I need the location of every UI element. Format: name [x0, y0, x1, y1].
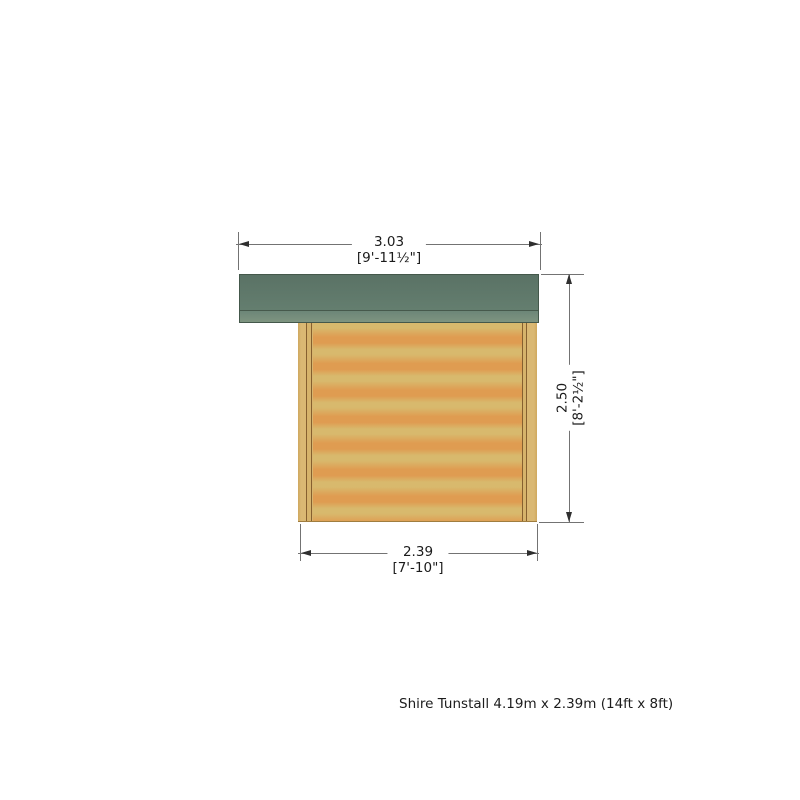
top-dim-ext-right-line — [540, 232, 541, 270]
bottom-dim-ext-right-line — [537, 524, 538, 561]
top-dim-ext-left-line — [238, 232, 239, 270]
top-dim-label: 3.03 [9'-11½"] — [352, 235, 426, 266]
right-dim-ext-bottom-line — [539, 522, 584, 523]
roof — [239, 274, 539, 323]
bottom-dim-label: 2.39 [7'-10"] — [387, 545, 448, 576]
right-dim-label: 2.50 [8'-2½"] — [555, 365, 586, 431]
bottom-dim-arrow-left — [301, 550, 311, 556]
right-dim-arrow-down — [566, 512, 572, 522]
wall-left-corner-post — [298, 323, 313, 521]
top-dim-imperial-value: [9'-11½"] — [357, 251, 421, 267]
roof-panel — [240, 275, 538, 310]
bottom-dim-metric-value: 2.39 — [392, 545, 443, 561]
bottom-dim-imperial-value: [7'-10"] — [392, 561, 443, 577]
right-dim-imperial-value: [8'-2½"] — [571, 370, 587, 426]
shed-elevation-diagram: 3.03 [9'-11½"] 2.50 [8'-2½"] 2.39 [7'-10… — [0, 0, 800, 800]
bottom-dim-arrow-right — [527, 550, 537, 556]
wall — [298, 323, 537, 522]
wall-right-corner-post — [522, 323, 537, 521]
top-dim-arrow-left — [239, 241, 249, 247]
roof-fascia — [240, 310, 538, 322]
top-dim-arrow-right — [529, 241, 539, 247]
right-dim-metric-value: 2.50 — [555, 370, 571, 426]
right-dim-arrow-up — [566, 274, 572, 284]
product-caption: Shire Tunstall 4.19m x 2.39m (14ft x 8ft… — [399, 696, 673, 712]
top-dim-metric-value: 3.03 — [357, 235, 421, 251]
right-dim-ext-top-line — [541, 274, 584, 275]
